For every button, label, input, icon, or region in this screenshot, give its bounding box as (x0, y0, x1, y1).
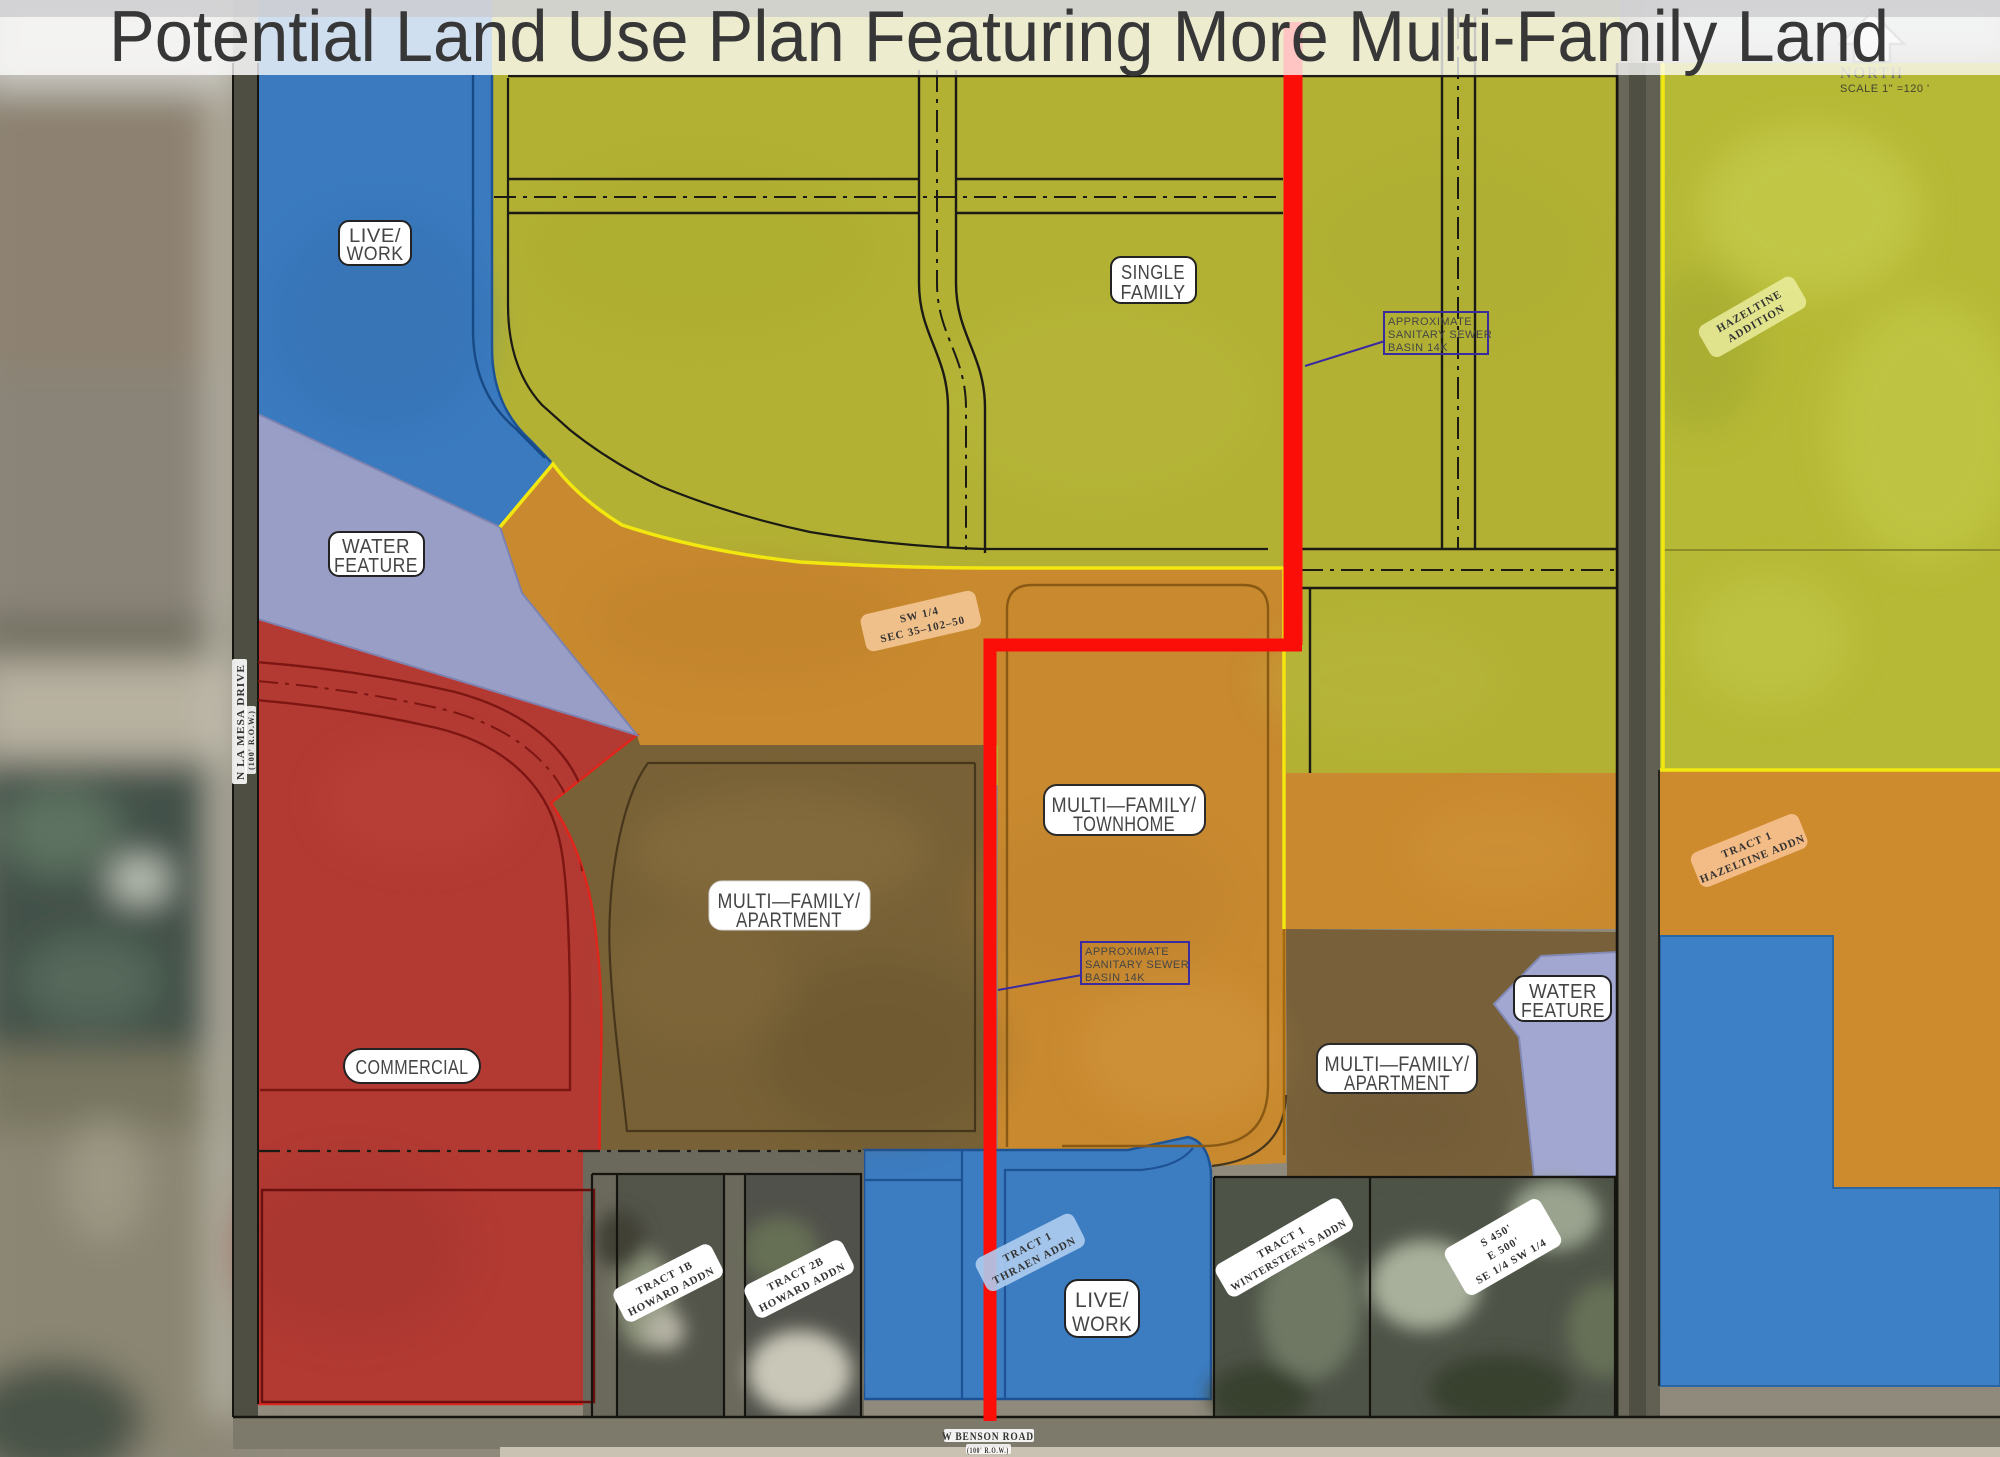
svg-text:WORK: WORK (347, 243, 404, 265)
svg-text:LIVE/: LIVE/ (1075, 1289, 1129, 1312)
svg-text:TOWNHOME: TOWNHOME (1073, 813, 1175, 836)
svg-text:SANITARY SEWER: SANITARY SEWER (1085, 959, 1189, 971)
svg-text:BASIN 14K: BASIN 14K (1085, 972, 1145, 984)
svg-text:FEATURE: FEATURE (1521, 1000, 1605, 1022)
svg-text:APARTMENT: APARTMENT (736, 909, 842, 932)
svg-text:FAMILY: FAMILY (1121, 282, 1186, 304)
svg-text:(100' R.O.W.): (100' R.O.W.) (247, 710, 256, 770)
svg-text:SCALE 1" =120 ': SCALE 1" =120 ' (1840, 83, 1930, 95)
svg-text:W BENSON ROAD: W BENSON ROAD (942, 1431, 1034, 1443)
svg-text:SANITARY SEWER: SANITARY SEWER (1388, 329, 1492, 341)
svg-text:APARTMENT: APARTMENT (1344, 1072, 1450, 1095)
svg-text:WORK: WORK (1072, 1313, 1132, 1336)
svg-text:APPROXIMATE: APPROXIMATE (1388, 316, 1472, 328)
svg-text:Potential Land Use Plan Featur: Potential Land Use Plan Featuring More M… (109, 0, 1889, 77)
svg-text:(100' R.O.W.): (100' R.O.W.) (967, 1446, 1009, 1455)
svg-text:COMMERCIAL: COMMERCIAL (356, 1057, 469, 1079)
svg-text:BASIN 14K: BASIN 14K (1388, 342, 1448, 354)
svg-text:APPROXIMATE: APPROXIMATE (1085, 946, 1169, 958)
svg-text:SINGLE: SINGLE (1121, 262, 1185, 284)
svg-text:FEATURE: FEATURE (334, 555, 418, 577)
